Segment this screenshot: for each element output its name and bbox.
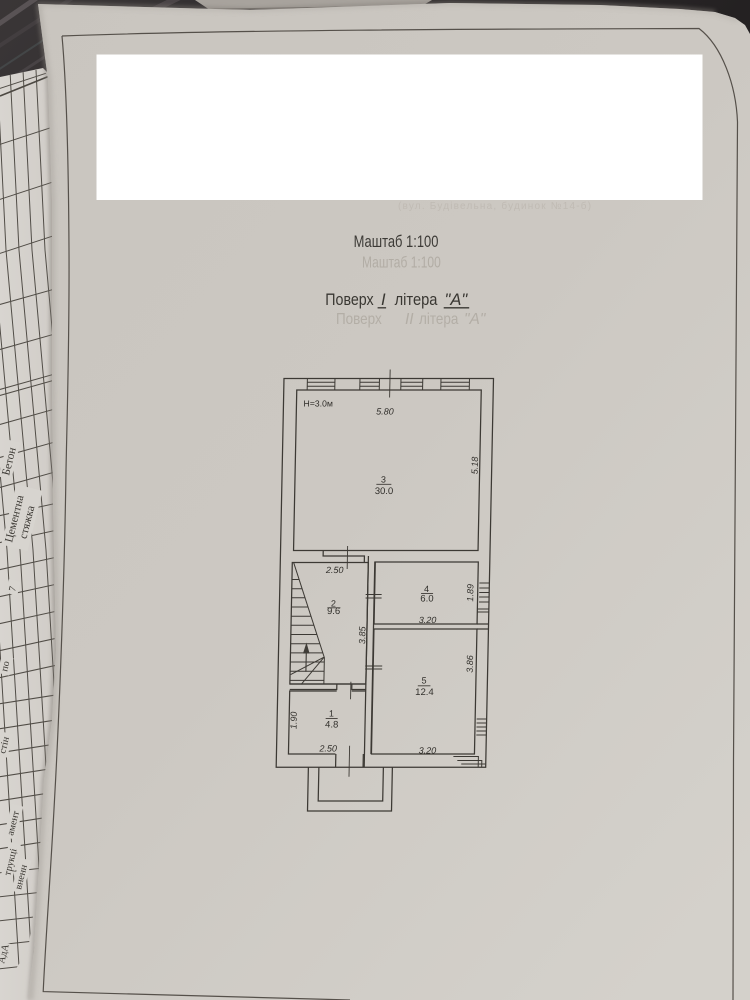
svg-text:12.4: 12.4 [415, 687, 434, 698]
svg-text:1.89: 1.89 [465, 584, 475, 602]
svg-text:літера: літера [395, 291, 438, 309]
svg-text:1.90: 1.90 [289, 712, 299, 730]
svg-text:"А": "А" [445, 291, 469, 309]
svg-text:3: 3 [381, 475, 386, 485]
svg-text:3.86: 3.86 [465, 655, 475, 673]
svg-text:Н=3.0м: Н=3.0м [303, 399, 333, 409]
svg-text:1: 1 [329, 709, 334, 719]
svg-text:5.80: 5.80 [376, 407, 394, 417]
svg-text:Поверх: Поверх [336, 311, 382, 328]
svg-text:Маштаб 1:100: Маштаб 1:100 [362, 253, 441, 271]
svg-text:І: І [381, 291, 386, 309]
svg-text:3.20: 3.20 [419, 615, 437, 625]
svg-text:"А": "А" [464, 311, 487, 328]
svg-text:(вул. Будівельна, будинок №14-: (вул. Будівельна, будинок №14-б) [398, 200, 592, 212]
svg-text:30.0: 30.0 [375, 486, 394, 497]
svg-text:2.50: 2.50 [318, 744, 337, 754]
svg-text:Поверх: Поверх [325, 291, 374, 309]
svg-text:2.50: 2.50 [325, 565, 344, 575]
svg-text:3.85: 3.85 [357, 626, 367, 645]
svg-text:ІІ: ІІ [405, 311, 414, 328]
svg-text:5.18: 5.18 [470, 457, 480, 475]
svg-text:літера: літера [419, 311, 459, 328]
svg-text:6.0: 6.0 [420, 594, 433, 605]
svg-text:5: 5 [421, 676, 426, 686]
svg-text:3.20: 3.20 [419, 746, 437, 756]
svg-text:4: 4 [424, 584, 429, 594]
svg-text:Маштаб 1:100: Маштаб 1:100 [354, 232, 439, 251]
svg-text:4.8: 4.8 [325, 720, 338, 731]
